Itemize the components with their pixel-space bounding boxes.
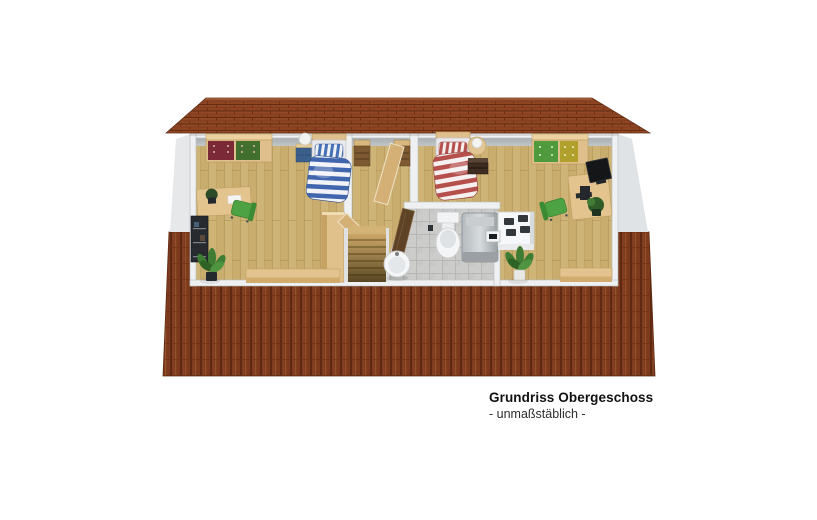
washbasin-faucet [395, 252, 399, 256]
gable-wall-left [170, 134, 190, 232]
roof-rear-band [166, 98, 650, 133]
wall-cap-right [612, 133, 618, 286]
gable-wall-right [618, 134, 648, 232]
table-lamp-right [472, 138, 482, 148]
bed-right-headboard [436, 132, 470, 138]
wardrobe-right [532, 134, 588, 164]
staircase-darkness [348, 234, 386, 282]
caption: Grundriss Obergeschoss - unmaßstäblich - [489, 390, 653, 421]
caption-subtitle: - unmaßstäblich - [489, 407, 653, 421]
toilet-paper-holder [428, 225, 433, 231]
wall-cap-left [190, 133, 196, 286]
sideboard-left [246, 269, 340, 283]
wardrobe-left-red-front [208, 141, 234, 160]
washbasin [384, 251, 410, 281]
wardrobe-right-green-front [534, 141, 558, 162]
toilet-cistern [437, 212, 459, 223]
bed-left-duvet [305, 155, 352, 204]
floorplan-figure: Grundriss Obergeschoss - unmaßstäblich - [0, 0, 817, 520]
bed-left-headboard [312, 134, 346, 140]
wardrobe-left [206, 134, 272, 162]
bed-left [305, 134, 352, 203]
caption-title: Grundriss Obergeschoss [489, 390, 653, 405]
plant-left-pot [206, 272, 217, 281]
nightstand-right [468, 158, 488, 174]
staircase [344, 226, 389, 282]
sideboard-right [560, 268, 612, 282]
desk-right-tower [580, 186, 590, 200]
table-lamp-left [299, 133, 311, 145]
wall-cap-bathroom-top [404, 202, 500, 209]
floorplan-scene [0, 0, 817, 520]
wall-cap-partition-right [410, 133, 418, 208]
wardrobe-right-yellow-front [560, 141, 578, 162]
cabinet-small-left [354, 140, 370, 166]
plant-right-pot [514, 270, 525, 280]
bedside-table-round [468, 137, 486, 155]
wardrobe-left-green-front [236, 141, 260, 160]
